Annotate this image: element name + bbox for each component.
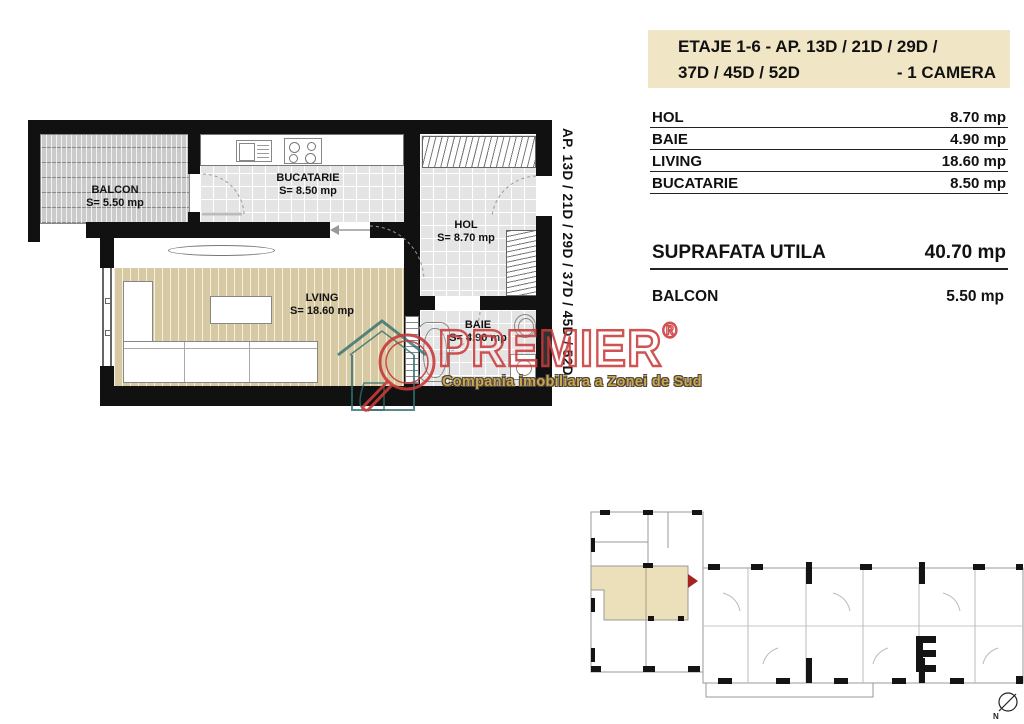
total-area-row: SUPRAFATA UTILA40.70 mp — [650, 240, 1008, 270]
highlighted-unit — [591, 566, 688, 620]
balcony-area-row: BALCON5.50 mp — [650, 288, 1006, 306]
north-compass-icon: N — [993, 693, 1017, 721]
building-keyplan: N — [588, 498, 1024, 724]
premier-tagline: Compania imobiliara a Zonei de Sud — [442, 374, 702, 390]
title-box: ETAJE 1-6 - AP. 13D / 21D / 29D / 37D / … — [648, 30, 1010, 88]
areas-table: HOL8.70 mp BAIE4.90 mp LIVING18.60 mp BU… — [650, 106, 1008, 194]
room-label-hol: HOLS= 8.70 mp — [401, 219, 531, 245]
table-row: HOL8.70 mp — [650, 106, 1008, 128]
title-line2-left: 37D / 45D / 52D — [678, 60, 800, 86]
table-row: LIVING18.60 mp — [650, 150, 1008, 172]
room-label-bucatarie: BUCATARIES= 8.50 mp — [243, 172, 373, 198]
registered-mark: ® — [662, 318, 678, 343]
premier-watermark-text: PREMIER® — [438, 318, 678, 379]
table-row: BUCATARIE8.50 mp — [650, 172, 1008, 194]
room-label-balcon: BALCONS= 5.50 mp — [50, 184, 180, 210]
floorplan-flyer: { "header": { "line1": "ETAJE 1-6 - AP. … — [0, 0, 1024, 724]
title-line1: ETAJE 1-6 - AP. 13D / 21D / 29D / — [678, 34, 1010, 60]
title-line2-right: - 1 CAMERA — [897, 60, 996, 86]
svg-text:N: N — [993, 712, 999, 721]
unit-location-marker — [688, 574, 698, 588]
table-row: BAIE4.90 mp — [650, 128, 1008, 150]
